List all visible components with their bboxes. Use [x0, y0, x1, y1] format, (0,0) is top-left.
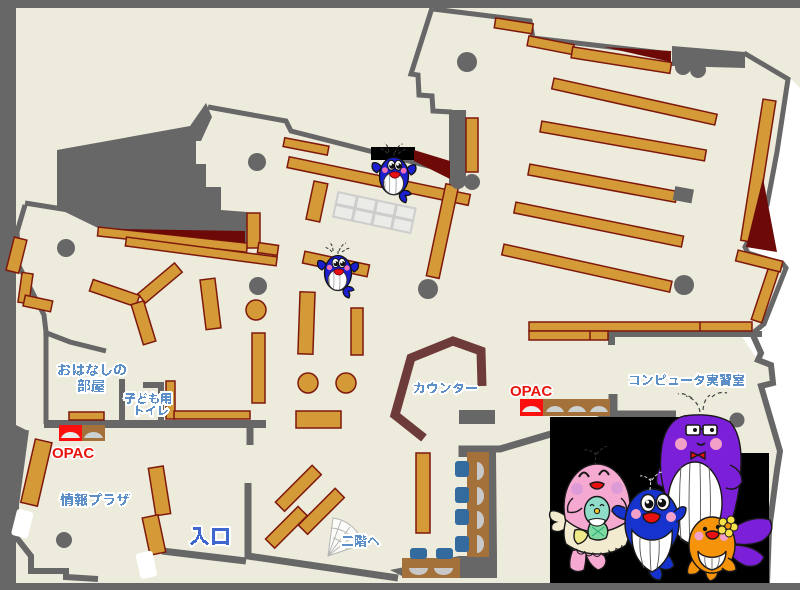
- svg-text:OPAC: OPAC: [52, 445, 94, 462]
- svg-text:OPAC: OPAC: [510, 383, 552, 400]
